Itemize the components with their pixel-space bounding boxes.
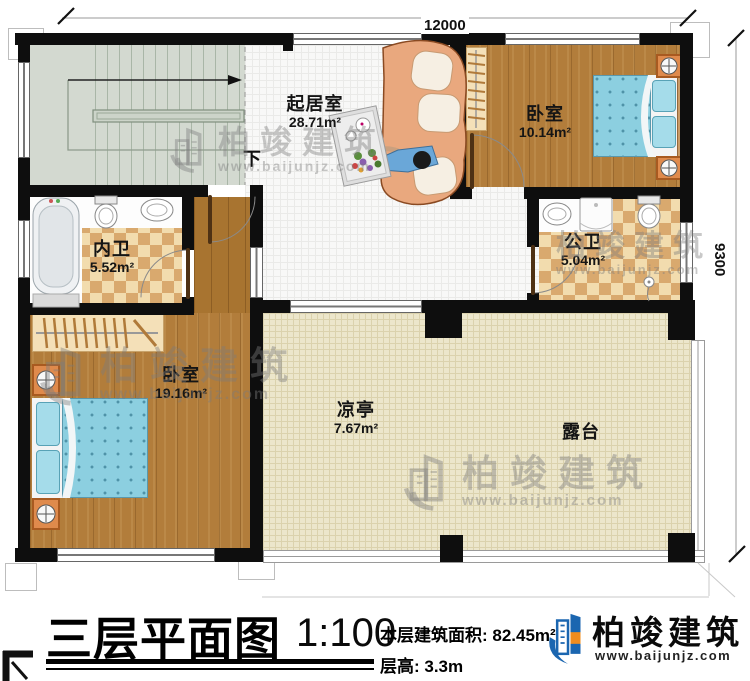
wall-segment: [18, 278, 30, 548]
room-label-living: 起居室 28.71m²: [255, 95, 375, 130]
brand-url: www.baijunjz.com: [595, 648, 731, 663]
window: [18, 62, 30, 158]
room-area: 7.67m²: [306, 421, 406, 436]
wall-segment: [18, 33, 30, 62]
roof-corner-box: [5, 563, 37, 591]
corner-mark: [3, 651, 33, 681]
wall-segment: [524, 187, 693, 199]
nightstand: [656, 54, 682, 78]
room-name: 露台: [531, 423, 631, 443]
eave-lines: [262, 563, 735, 597]
wall-segment: [450, 45, 466, 187]
room-label-terrace: 露台: [531, 423, 631, 443]
hallway-floor: [194, 197, 250, 315]
window: [57, 548, 215, 562]
terrace-railing-bottom: [263, 550, 705, 563]
room-name: 卧室: [495, 105, 595, 125]
wardrobe-top: [466, 47, 487, 131]
room-name: 卧室: [131, 366, 231, 386]
wall-segment: [15, 548, 57, 562]
bed-top-right: [593, 75, 651, 157]
column: [668, 300, 695, 340]
wall-segment: [283, 33, 293, 51]
wall-segment: [422, 300, 693, 313]
wall-segment: [640, 33, 693, 45]
room-name: 凉亭: [306, 401, 406, 421]
bed-bottom-left: [62, 398, 148, 498]
window: [18, 220, 30, 278]
title-underline-thin: [46, 668, 374, 670]
nightstand: [32, 498, 60, 530]
wardrobe-left: [32, 314, 164, 352]
room-name: 公卫: [533, 233, 633, 253]
brand-name: 柏竣建筑: [592, 606, 744, 654]
wall-segment: [18, 185, 208, 197]
dimension-right: 9300: [711, 240, 728, 279]
floor-area-text: 本层建筑面积: 82.45m²: [380, 621, 556, 646]
window: [505, 33, 640, 45]
pillow: [652, 116, 676, 148]
floorplan-canvas: 起居室 28.71m² 卧室 10.14m² 内卫 5.52m² 公卫 5.04…: [0, 0, 750, 681]
wall-segment: [15, 33, 283, 45]
room-label-public-bath: 公卫 5.04m²: [533, 233, 633, 268]
room-area: 5.52m²: [62, 260, 162, 275]
wall-segment: [182, 297, 194, 305]
wall-segment: [250, 185, 263, 247]
dimension-top: 12000: [421, 17, 469, 34]
wall-segment: [422, 33, 505, 45]
public-bath-counter: [539, 199, 613, 232]
wall-segment: [680, 45, 693, 222]
room-area: 10.14m²: [495, 125, 595, 140]
room-label-inner-bath: 内卫 5.52m²: [62, 240, 162, 275]
stair-treads: [95, 45, 245, 185]
brand-logo-icon: [543, 608, 593, 668]
wall-segment: [18, 303, 194, 315]
window: [680, 222, 693, 283]
wall-segment: [182, 197, 194, 250]
nightstand: [656, 156, 682, 180]
nightstand: [32, 364, 60, 396]
pillow: [36, 402, 60, 446]
room-label-pavilion: 凉亭 7.67m²: [306, 401, 406, 436]
pillow: [36, 450, 60, 494]
stairs-down-label: 下: [243, 145, 261, 171]
room-name: 起居室: [255, 95, 375, 115]
room-area: 19.16m²: [131, 386, 231, 401]
title-underline: [46, 659, 374, 664]
terrace-railing-right: [691, 340, 705, 552]
room-name: 内卫: [62, 240, 162, 260]
room-area: 28.71m²: [255, 115, 375, 130]
column: [668, 533, 695, 562]
column: [425, 300, 462, 338]
window: [250, 247, 263, 298]
wall-segment: [450, 187, 472, 199]
wall-segment: [215, 548, 263, 562]
window: [290, 300, 422, 313]
wall-segment: [263, 300, 290, 313]
window: [293, 33, 422, 45]
pillow: [652, 80, 676, 112]
wall-segment: [250, 298, 263, 550]
floor-height-text: 层高: 3.3m: [380, 652, 463, 677]
room-label-bedroom-left: 卧室 19.16m²: [131, 366, 231, 401]
room-label-bedroom-top: 卧室 10.14m²: [495, 105, 595, 140]
column: [440, 535, 463, 562]
room-area: 5.04m²: [533, 253, 633, 268]
inner-bath-counter: [80, 197, 182, 228]
